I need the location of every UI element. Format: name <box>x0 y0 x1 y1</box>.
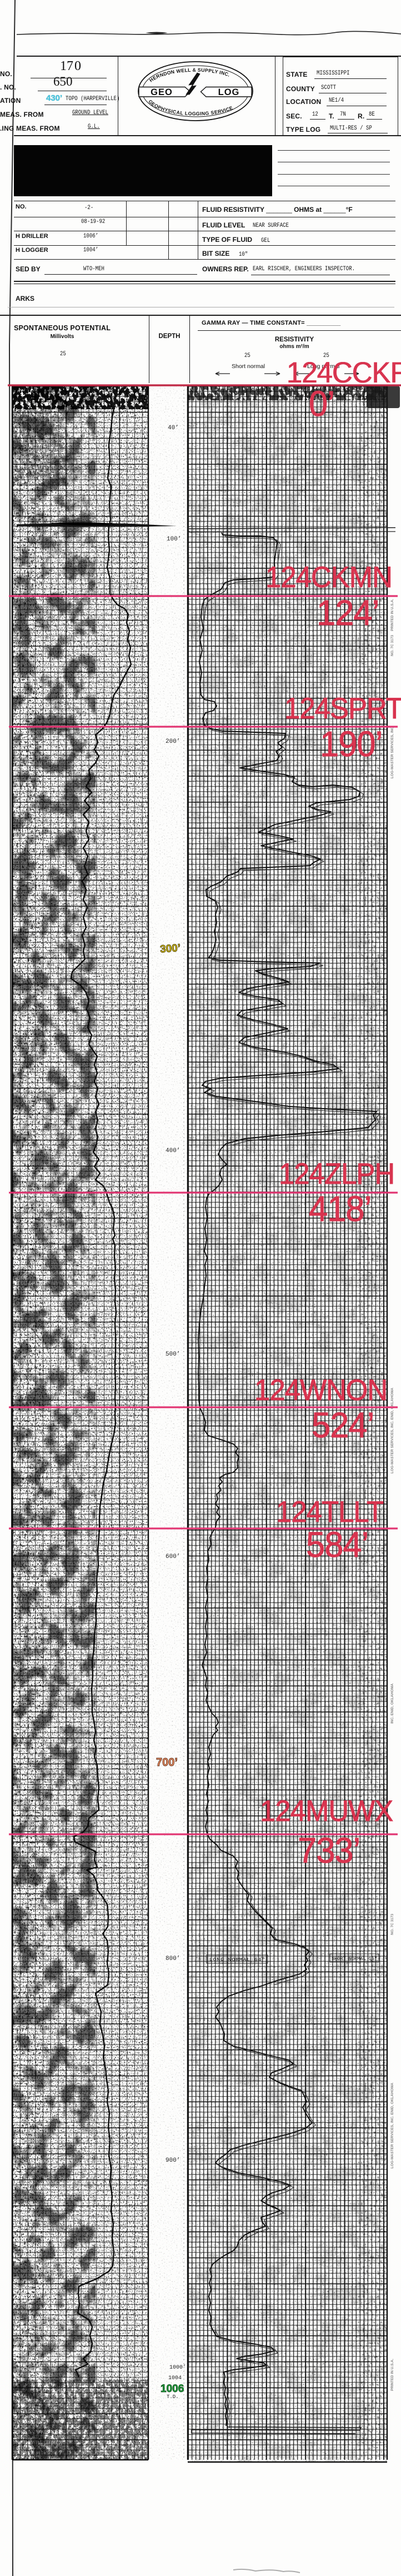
svg-text:GEO: GEO <box>151 87 173 97</box>
svg-text:GEOPHYSICAL LOGGING SERVICE: GEOPHYSICAL LOGGING SERVICE <box>147 98 233 116</box>
svg-text:500’: 500’ <box>166 1351 180 1358</box>
svg-text:200’: 200’ <box>166 738 180 745</box>
svg-text:524’: 524’ <box>312 1406 374 1445</box>
svg-text:40’: 40’ <box>168 425 179 431</box>
svg-text:584’: 584’ <box>306 1525 368 1565</box>
svg-text:T.D.: T.D. <box>167 2394 179 2400</box>
svg-text:124MUWX: 124MUWX <box>260 1795 393 1828</box>
svg-text:1006: 1006 <box>161 2383 184 2395</box>
svg-text:124CKMN: 124CKMN <box>265 561 392 594</box>
svg-text:INC. ENID, OKLAHOMA: INC. ENID, OKLAHOMA <box>390 1683 394 1724</box>
svg-text:LOG-MASTER SERVICES, INC. ENID: LOG-MASTER SERVICES, INC. ENID, OKLAHOMA <box>390 1388 394 1473</box>
svg-text:418’: 418’ <box>309 1189 371 1229</box>
svg-text:700’: 700’ <box>156 1756 178 1769</box>
svg-text:124WNON: 124WNON <box>254 1374 387 1407</box>
svg-text:PRINTED IN U.S.A.: PRINTED IN U.S.A. <box>390 2359 394 2391</box>
svg-text:733’: 733’ <box>298 1831 360 1870</box>
svg-text:900’: 900’ <box>166 2157 180 2164</box>
svg-text:300’: 300’ <box>159 942 181 956</box>
svg-text:124’: 124’ <box>317 593 379 633</box>
svg-text:HERNDON WELL & SUPPLY INC.: HERNDON WELL & SUPPLY INC. <box>148 67 230 83</box>
svg-text:NO. 7C 3173 PRINTED IN U.S.: NO. 7C 3173 PRINTED IN U.S.A. <box>390 599 394 656</box>
svg-text:LOG-MASTER SERVICES, INC. ENID: LOG-MASTER SERVICES, INC. ENID, OKLAHOMA <box>390 2083 394 2168</box>
svg-text:124SPRT: 124SPRT <box>284 692 401 725</box>
svg-text:1000’: 1000’ <box>169 2364 186 2371</box>
svg-text:0’: 0’ <box>309 384 334 424</box>
svg-text:124TLLT: 124TLLT <box>276 1496 383 1528</box>
svg-text:LOG: LOG <box>218 87 240 97</box>
svg-text:800’: 800’ <box>166 1955 180 1962</box>
svg-text:100’: 100’ <box>167 536 181 543</box>
svg-text:1004: 1004 <box>168 2375 182 2381</box>
svg-text:SHORT NORMAL 16″: SHORT NORMAL 16″ <box>332 1956 377 1962</box>
svg-text:NO. 7C 3173: NO. 7C 3173 <box>390 1914 394 1935</box>
svg-text:600’: 600’ <box>166 1553 180 1560</box>
svg-text:190’: 190’ <box>320 724 382 764</box>
svg-text:400’: 400’ <box>166 1148 180 1154</box>
svg-text:LONG NORMAL 64″: LONG NORMAL 64″ <box>209 1957 265 1963</box>
svg-text:LOG-MASTER SERVICES, INC.: LOG-MASTER SERVICES, INC. <box>390 726 394 778</box>
svg-text:124ZLPH: 124ZLPH <box>279 1158 394 1190</box>
